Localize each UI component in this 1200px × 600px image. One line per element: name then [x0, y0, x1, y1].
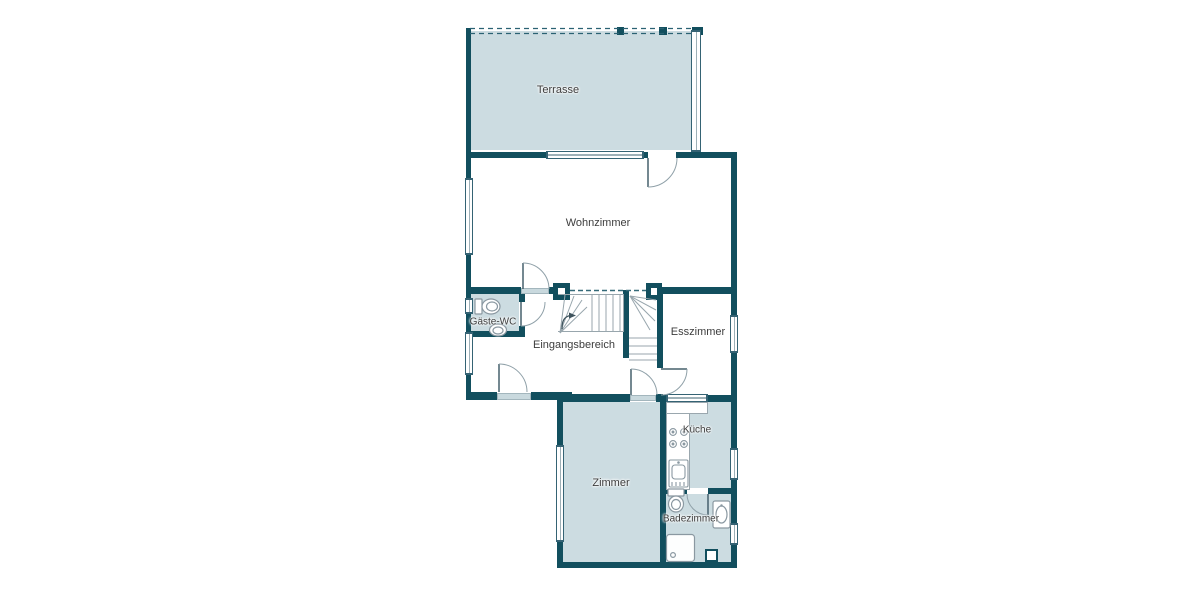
pillar-core [558, 288, 565, 295]
room-label-zimmer: Zimmer [592, 477, 629, 489]
dining-kitchen-passthrough [666, 394, 708, 402]
glass-line [734, 525, 735, 543]
left-wall [466, 375, 471, 392]
top-wall [466, 152, 546, 158]
room-terrasse [471, 31, 692, 150]
bottom-wall [557, 562, 737, 568]
wc-bottom-wall [466, 331, 525, 337]
room-label-badezimmer: Badezimmer [663, 514, 719, 525]
room-label-kueche: Küche [683, 425, 711, 436]
door-swing-arc [648, 158, 677, 187]
room-label-wohnzimmer: Wohnzimmer [566, 217, 631, 229]
glass-line [469, 180, 470, 253]
door-swing-arc [521, 302, 545, 326]
terrace-railing [691, 30, 701, 152]
stair-divider-wall [623, 290, 629, 358]
entrance-door-sill [497, 393, 531, 400]
living-room-door [523, 263, 549, 289]
bathroom-window [730, 523, 738, 545]
door-sill [630, 395, 656, 401]
zimmer-left-wall [557, 400, 563, 445]
hall-bottom-wall [466, 392, 497, 400]
kitchen-bath-divider-wall [708, 488, 737, 494]
door-swing-arc [499, 364, 527, 392]
glass-line [668, 398, 706, 399]
dining-left-wall [657, 294, 663, 368]
floor-plan: Terrasse Wohnzimmer Gäste-WC Eingangsber… [0, 0, 1200, 600]
zimmer-door [631, 369, 657, 395]
hall-window [465, 332, 473, 375]
winder-stairs-lower-icon [629, 296, 657, 360]
door-swing-arc [631, 369, 657, 395]
glass-line [469, 300, 470, 312]
room-label-gaeste-wc: Gäste-WC [470, 317, 517, 328]
room-label-eingangsbereich: Eingangsbereich [533, 339, 615, 351]
stair-direction-arrow [562, 313, 576, 330]
glass-line [734, 317, 735, 351]
terrace-post [617, 27, 624, 35]
door-sill [521, 288, 549, 294]
living-room-window [465, 178, 473, 255]
wc-window [465, 298, 473, 314]
entrance-door [499, 364, 527, 392]
glass-line [469, 334, 470, 373]
zimmer-window [556, 445, 564, 542]
door-swing-arc [523, 263, 549, 289]
kitchen-window [730, 448, 738, 480]
room-badezimmer [666, 494, 731, 562]
living-hall-divider-wall [466, 287, 521, 294]
top-wall [644, 152, 648, 158]
dining-bottom-wall [708, 395, 737, 402]
terrace-door [648, 158, 677, 187]
left-wall [466, 158, 471, 178]
glass-line [734, 450, 735, 478]
terrace-window [546, 151, 644, 159]
glass-line [548, 155, 642, 156]
living-dining-divider-wall [662, 287, 737, 294]
right-wall [731, 480, 737, 523]
terrace-left-wall [466, 28, 471, 152]
room-label-terrasse: Terrasse [537, 84, 579, 96]
room-label-esszimmer: Esszimmer [671, 326, 725, 338]
dining-window [730, 315, 738, 353]
dining-door [661, 369, 687, 395]
top-wall [676, 152, 737, 158]
pillar [553, 283, 570, 300]
wc-right-wall [519, 294, 525, 302]
door-swing-arc [661, 369, 687, 395]
bathroom-niche [705, 549, 718, 562]
zimmer-top-wall [563, 394, 630, 402]
glass-line [560, 447, 561, 540]
terrace-post [659, 27, 667, 35]
glass-line [696, 32, 697, 150]
wc-door [521, 302, 545, 326]
